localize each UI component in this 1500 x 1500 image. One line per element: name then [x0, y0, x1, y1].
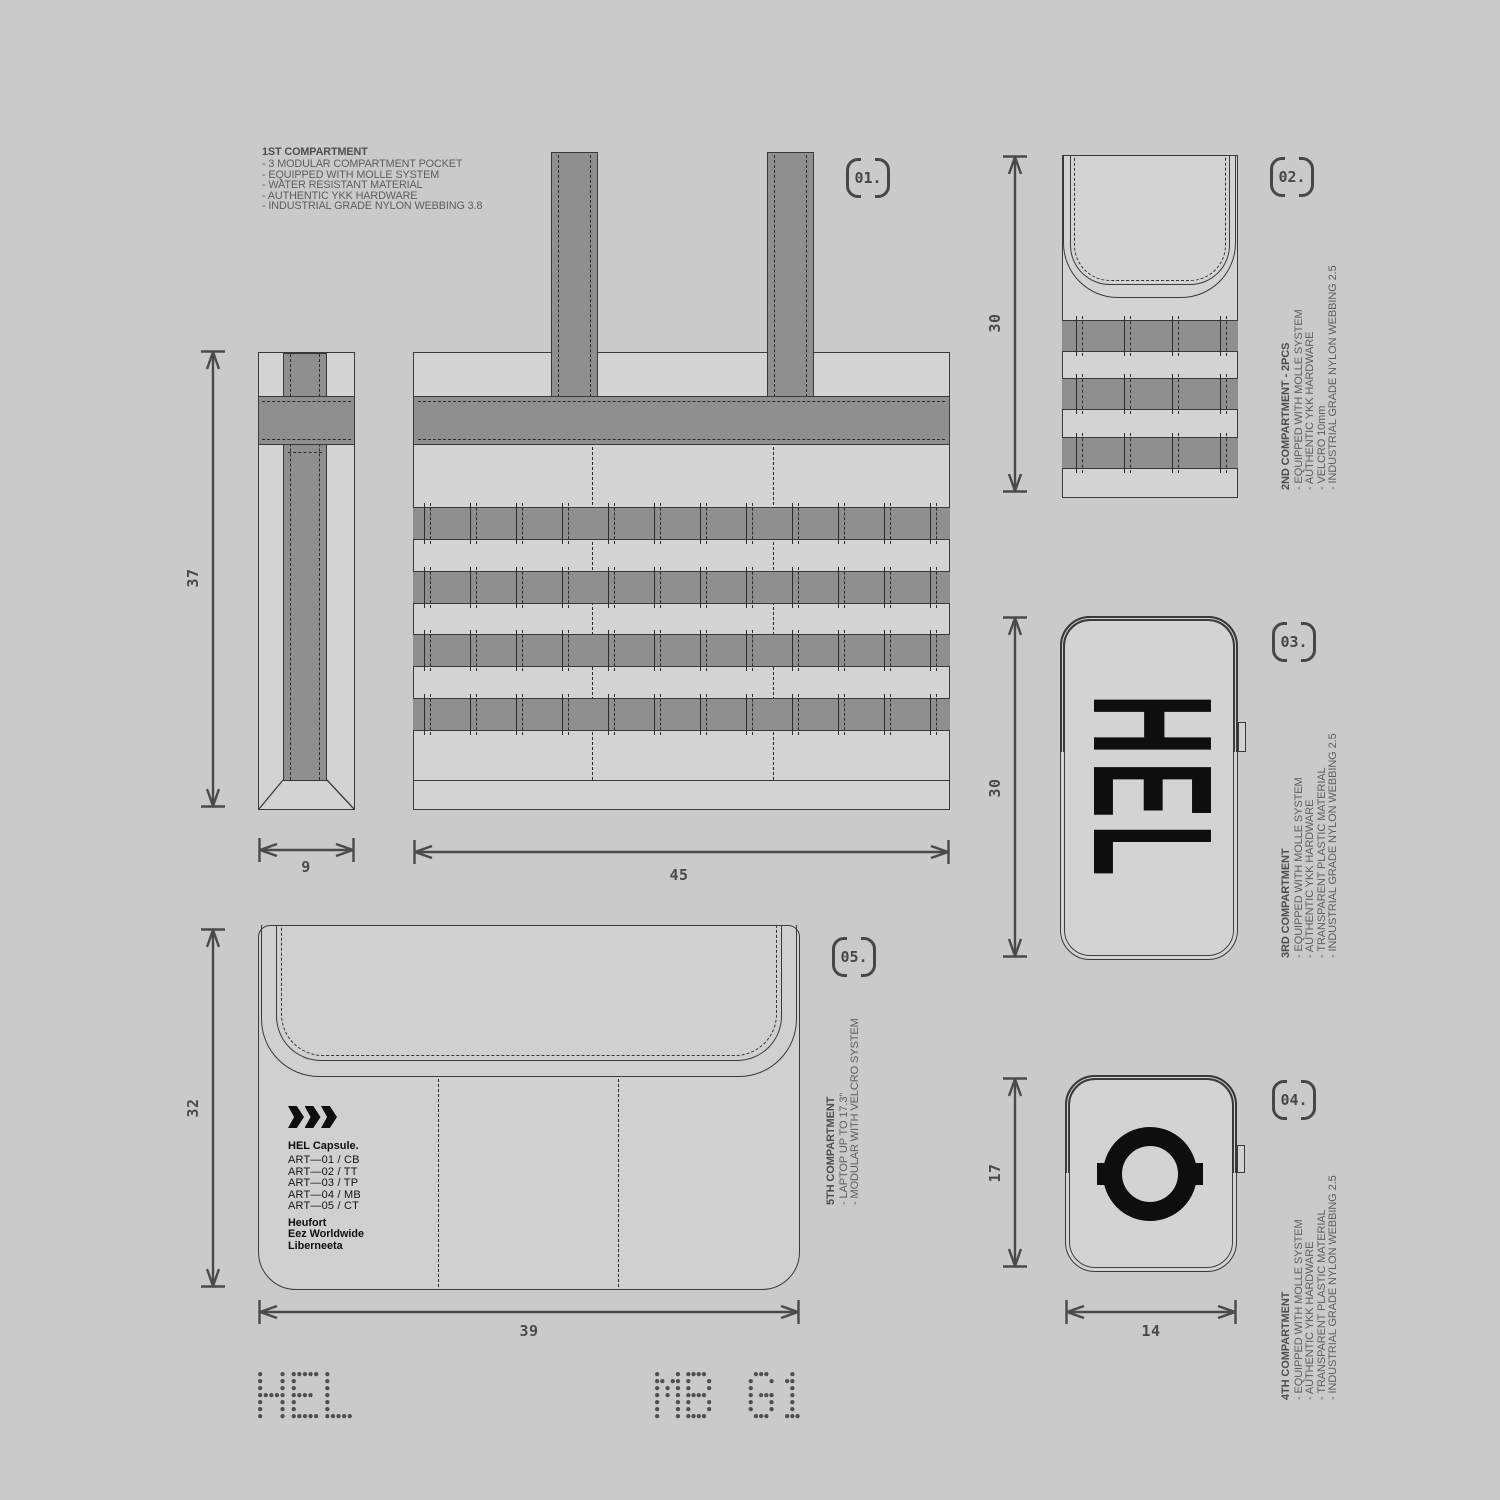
dim-label-sleeve-width: 39	[514, 1322, 544, 1340]
spec-bullet: - INDUSTRIAL GRADE NYLON WEBBING 2.5	[1328, 1175, 1339, 1400]
molle-row	[413, 698, 950, 731]
molle-stitch	[516, 694, 523, 735]
side-view-bottom-fold	[258, 780, 355, 810]
molle-row	[1062, 437, 1238, 469]
molle-stitch	[1076, 316, 1083, 356]
molle-stitch	[838, 630, 845, 671]
stitch-line	[590, 155, 591, 397]
molle-stitch	[424, 567, 431, 608]
molle-stitch	[1076, 433, 1083, 473]
article-code: ART—05 / CT	[288, 1201, 364, 1213]
molle-row	[1062, 378, 1238, 410]
comp4-logo-notch-right	[1193, 1163, 1203, 1185]
spec-title: 5TH COMPARTMENT	[826, 1018, 837, 1205]
stitch-line	[418, 439, 945, 440]
stitch-line	[418, 401, 945, 402]
chevron-icon	[321, 1106, 337, 1128]
molle-stitch	[930, 694, 937, 735]
dim-label-side-width: 9	[291, 858, 321, 876]
spec-block-3: 3RD COMPARTMENT - EQUIPPED WITH MOLLE SY…	[1281, 733, 1339, 958]
molle-stitch	[930, 630, 937, 671]
comp2-flap-stitch	[1074, 155, 1226, 281]
molle-stitch	[1172, 374, 1179, 414]
maker-name: Liberneeta	[288, 1241, 364, 1252]
molle-stitch	[608, 694, 615, 735]
molle-stitch	[838, 694, 845, 735]
molle-stitch	[562, 503, 569, 544]
dim-label-sleeve-height: 32	[184, 1083, 202, 1133]
molle-stitch	[700, 503, 707, 544]
badge-label: 05.	[835, 940, 873, 974]
spec-title: 4TH COMPARTMENT	[1281, 1175, 1292, 1400]
molle-stitch	[654, 694, 661, 735]
molle-stitch	[424, 630, 431, 671]
molle-stitch	[470, 694, 477, 735]
molle-stitch	[562, 630, 569, 671]
molle-stitch	[930, 567, 937, 608]
molle-row	[413, 571, 950, 604]
molle-stitch	[470, 567, 477, 608]
badge-label: 04.	[1275, 1083, 1313, 1117]
spec-title: 2ND COMPARTMENT - 2PCS	[1281, 265, 1292, 490]
front-strap-left	[551, 152, 598, 400]
spec-block-1: 1ST COMPARTMENT - 3 MODULAR COMPARTMENT …	[262, 147, 482, 211]
molle-stitch	[1076, 374, 1083, 414]
spec-bullet: - AUTHENTIC YKK HARDWARE	[1305, 265, 1316, 490]
sleeve-print-block: HEL Capsule. ART—01 / CB ART—02 / TT ART…	[288, 1106, 364, 1252]
front-bottom-seam	[413, 780, 950, 781]
spec-title: 1ST COMPARTMENT	[262, 147, 482, 157]
spec-block-4: 4TH COMPARTMENT - EQUIPPED WITH MOLLE SY…	[1281, 1175, 1339, 1400]
comp4-logo-notch-left	[1097, 1163, 1107, 1185]
molle-stitch	[884, 630, 891, 671]
front-strap-right	[767, 152, 814, 400]
dim-label-comp4-height: 17	[986, 1148, 1004, 1198]
molle-stitch	[792, 630, 799, 671]
molle-stitch	[516, 630, 523, 671]
molle-stitch	[608, 567, 615, 608]
molle-stitch	[746, 630, 753, 671]
molle-stitch	[608, 630, 615, 671]
brand-name: HEL Capsule.	[288, 1140, 364, 1152]
front-top-band	[413, 396, 950, 445]
dim-label-comp2-height: 30	[986, 298, 1004, 348]
molle-stitch	[1220, 374, 1227, 414]
spec-bullet: - INDUSTRIAL GRADE NYLON WEBBING 2.5	[1328, 733, 1339, 958]
brand-arrows	[288, 1106, 364, 1133]
badge-01: 01.	[846, 158, 890, 198]
molle-stitch	[746, 503, 753, 544]
molle-stitch	[1220, 316, 1227, 356]
molle-stitch	[700, 694, 707, 735]
molle-stitch	[516, 567, 523, 608]
stitch-line	[262, 401, 351, 402]
molle-stitch	[424, 694, 431, 735]
badge-02: 02.	[1270, 157, 1314, 197]
stitch-line	[806, 155, 807, 397]
spec-block-5: 5TH COMPARTMENT - LAPTOP UP TO 17.3" - M…	[826, 1018, 862, 1205]
spec-bullet: - AUTHENTIC YKK HARDWARE	[1305, 733, 1316, 958]
molle-stitch	[792, 503, 799, 544]
spec-title: 3RD COMPARTMENT	[1281, 733, 1292, 958]
dim-label-front-width: 45	[664, 866, 694, 884]
molle-row	[1062, 320, 1238, 352]
molle-stitch	[700, 567, 707, 608]
sleeve-divider-dashed	[618, 1079, 619, 1287]
molle-stitch	[654, 630, 661, 671]
molle-stitch	[654, 503, 661, 544]
molle-stitch	[608, 503, 615, 544]
spec-bullet: - MODULAR WITH VELCRO SYSTEM	[850, 1018, 861, 1205]
blueprint-sheet: 1ST COMPARTMENT - 3 MODULAR COMPARTMENT …	[0, 0, 1500, 1500]
spec-bullet: - AUTHENTIC YKK HARDWARE	[1305, 1175, 1316, 1400]
side-view-band	[258, 396, 355, 445]
chevron-icon	[305, 1106, 321, 1128]
molle-stitch	[746, 567, 753, 608]
molle-row	[413, 634, 950, 667]
molle-stitch	[930, 503, 937, 544]
molle-stitch	[884, 694, 891, 735]
badge-05: 05.	[832, 937, 876, 977]
molle-stitch	[792, 694, 799, 735]
molle-stitch	[838, 567, 845, 608]
comp3-logo: HEL	[1040, 628, 1260, 948]
dim-label-comp4-width: 14	[1136, 1322, 1166, 1340]
molle-stitch	[516, 503, 523, 544]
spec-bullet: - INDUSTRIAL GRADE NYLON WEBBING 2.5	[1328, 265, 1339, 490]
molle-stitch	[700, 630, 707, 671]
molle-stitch	[1172, 316, 1179, 356]
stitch-line	[262, 439, 351, 440]
molle-stitch	[1172, 433, 1179, 473]
stitch-line	[774, 155, 775, 397]
molle-stitch	[654, 567, 661, 608]
stitch-line	[558, 155, 559, 397]
stitch-line	[288, 452, 322, 453]
molle-stitch	[1124, 433, 1131, 473]
badge-04: 04.	[1272, 1080, 1316, 1120]
molle-stitch	[1220, 433, 1227, 473]
sleeve-flap-stitch	[281, 925, 777, 1056]
molle-stitch	[562, 567, 569, 608]
molle-stitch	[424, 503, 431, 544]
molle-stitch	[1124, 374, 1131, 414]
badge-label: 02.	[1273, 160, 1311, 194]
molle-stitch	[884, 567, 891, 608]
molle-row	[413, 507, 950, 540]
molle-stitch	[792, 567, 799, 608]
molle-stitch	[1124, 316, 1131, 356]
molle-stitch	[470, 503, 477, 544]
molle-stitch	[562, 694, 569, 735]
comp4-zip-tab	[1237, 1145, 1245, 1173]
badge-label: 03.	[1275, 625, 1313, 659]
molle-stitch	[470, 630, 477, 671]
dim-label-comp3-height: 30	[986, 763, 1004, 813]
molle-stitch	[838, 503, 845, 544]
dim-label-side-height: 37	[184, 553, 202, 603]
spec-block-2: 2ND COMPARTMENT - 2PCS - EQUIPPED WITH M…	[1281, 265, 1339, 490]
comp4-logo-o	[1103, 1127, 1197, 1221]
spec-bullet: - INDUSTRIAL GRADE NYLON WEBBING 3.8	[262, 201, 482, 211]
molle-stitch	[746, 694, 753, 735]
sleeve-divider-dashed	[438, 1079, 439, 1287]
badge-03: 03.	[1272, 622, 1316, 662]
chevron-icon	[288, 1106, 304, 1128]
article-code: ART—01 / CB	[288, 1155, 364, 1167]
molle-stitch	[884, 503, 891, 544]
badge-label: 01.	[849, 161, 887, 195]
